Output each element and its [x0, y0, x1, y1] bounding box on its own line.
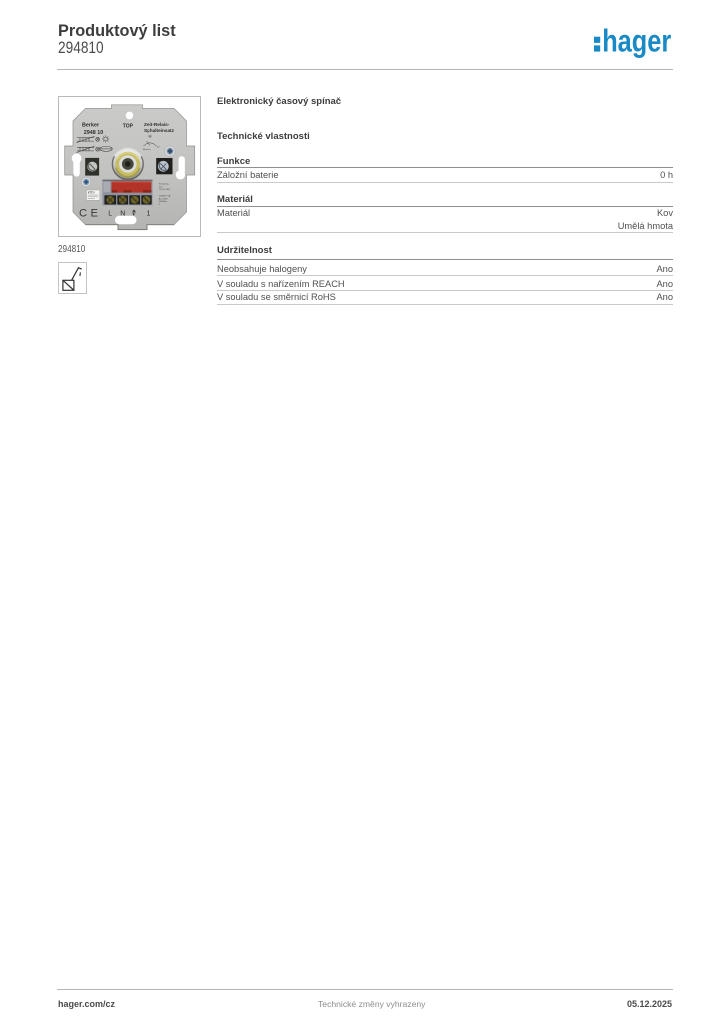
svg-text:XTTU: XTTU [88, 190, 95, 194]
svg-text:TS,2h 230V: TS,2h 230V [159, 189, 171, 191]
svg-text:50/60Hz: 50/60Hz [159, 201, 167, 203]
svg-text:CE: CE [79, 207, 101, 219]
svg-text:1: 1 [147, 211, 151, 218]
svg-text:2948 10: 2948 10 [84, 130, 104, 136]
svg-text:hager: hager [602, 26, 671, 59]
svg-text:Zeit-Relais-: Zeit-Relais- [144, 122, 170, 127]
svg-text:N: N [120, 211, 125, 218]
svg-text:L: L [108, 211, 112, 218]
svg-text:Minuten: Minuten [143, 148, 151, 151]
svg-text:TOP: TOP [123, 124, 134, 130]
svg-text:AC 230V~: AC 230V~ [159, 197, 170, 200]
svg-text:min.: min. [159, 186, 164, 188]
svg-text:1000W / VA: 1000W / VA [159, 195, 171, 198]
svg-text:Berker: Berker [82, 123, 100, 129]
svg-text:Schaltung: Schaltung [159, 183, 170, 186]
